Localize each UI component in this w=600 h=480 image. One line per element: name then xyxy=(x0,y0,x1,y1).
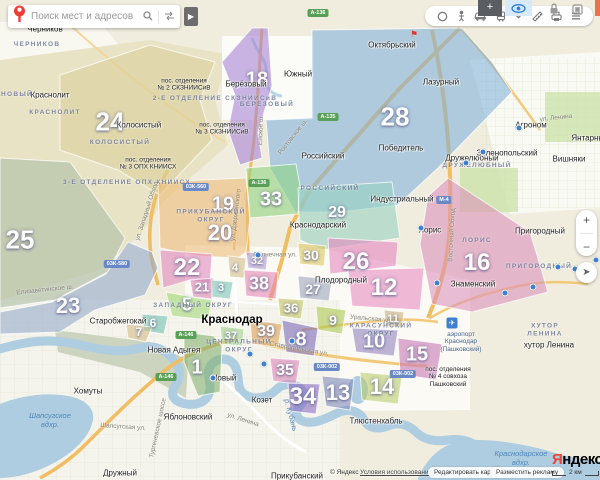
region-number-23[interactable]: 23 xyxy=(56,293,80,319)
poi-marker[interactable] xyxy=(434,280,441,287)
region-number-36[interactable]: 36 xyxy=(284,301,298,316)
water-label: Шапсугское вдхр. xyxy=(29,411,71,429)
region-number-16[interactable]: 16 xyxy=(464,249,491,277)
region-number-6[interactable]: 6 xyxy=(150,316,157,330)
road-label: Ейское ш. xyxy=(257,115,265,145)
scale-bar: 2 км xyxy=(552,469,599,476)
zoom-divider xyxy=(580,233,593,234)
region-number-28[interactable]: 28 xyxy=(381,102,410,133)
settlement-label: пос. отделения № 3 ОПХ КНИИСХ xyxy=(120,157,177,172)
routes-icon[interactable] xyxy=(164,8,175,26)
region-number-3[interactable]: 3 xyxy=(218,282,224,294)
district-label: 3-Е ОТДЕЛЕНИЕ ОПХ КНИИСХ xyxy=(63,179,191,187)
lock-icon[interactable] xyxy=(549,2,559,20)
road-label: ул. Западный Обход xyxy=(134,181,160,242)
road-shield: А-135 xyxy=(318,113,339,121)
window-icon[interactable] xyxy=(572,2,583,20)
district-label: КАРАСУНСКИЙ ОКРУГ xyxy=(350,323,413,340)
district-label: ЛОРИС xyxy=(462,237,492,245)
locate-me-button[interactable]: ➤ xyxy=(576,262,597,283)
settlement-label: пос. отделения № 2 СКЗНИИСиВ xyxy=(157,78,210,93)
water-label: Краснодарское вдхр. xyxy=(495,449,548,467)
town-label: Индустриальный xyxy=(370,195,433,204)
road-shield: А-146 xyxy=(156,373,177,381)
town-label: Краснолит xyxy=(30,91,69,100)
region-number-38[interactable]: 38 xyxy=(249,274,269,295)
poi-marker[interactable] xyxy=(247,351,254,358)
road-label: Тургеневское шоссе xyxy=(148,397,168,458)
town-label: Южный xyxy=(284,70,312,79)
road-shield: 03К-002 xyxy=(314,363,340,371)
district-label: КРАСНОЛИТ xyxy=(29,109,80,117)
road-shield: 03К-580 xyxy=(104,260,130,268)
road-shield: А-136 xyxy=(249,179,270,187)
search-icon[interactable] xyxy=(143,8,153,26)
poi-marker[interactable] xyxy=(516,125,523,132)
town-label: хутор Ленина xyxy=(524,341,574,350)
road-label: ул. Ленина xyxy=(539,113,572,123)
poi-marker[interactable] xyxy=(418,225,425,232)
town-label: Козет xyxy=(252,396,272,405)
district-label: РОССИЙСКИЙ xyxy=(300,185,359,193)
map-footer: © Яндекс Условия использования Редактиро… xyxy=(0,466,600,480)
town-label: Плодородный xyxy=(315,276,367,285)
town-label: Янтарный xyxy=(571,134,600,143)
road-shield: А-146 xyxy=(176,331,197,339)
district-label: ЧЕРНИКОВ xyxy=(14,41,61,49)
town-label: Тлюстенхабль xyxy=(349,417,402,426)
road-shield: А-136 xyxy=(308,9,329,17)
poi-marker[interactable] xyxy=(480,149,487,156)
region-number-25[interactable]: 25 xyxy=(6,225,35,256)
poi-marker[interactable] xyxy=(255,252,262,259)
road-shield: М-4 xyxy=(436,196,451,204)
region-number-33[interactable]: 33 xyxy=(260,189,282,212)
town-label: Победитель xyxy=(379,144,424,153)
airport-label: аэропорт Краснодар (Пашковский) xyxy=(440,331,481,353)
flag-marker[interactable]: ⚑ xyxy=(410,29,418,40)
road-shield: 03К-560 xyxy=(183,183,209,191)
panel-expand-button[interactable]: ▶ xyxy=(184,7,198,26)
region-number-7[interactable]: 7 xyxy=(136,325,143,339)
town-label: Хомуты xyxy=(74,387,103,396)
browser-edge-sliver xyxy=(595,0,600,16)
road-label: Ростовское ш. xyxy=(277,118,309,156)
terms-link[interactable]: Условия использования xyxy=(360,469,432,476)
district-label: ПРИГОРОДНЫЙ xyxy=(506,263,572,271)
region-number-1[interactable]: 1 xyxy=(191,357,202,380)
town-label: Яблоновский xyxy=(164,413,213,422)
town-label: Лазурный xyxy=(423,78,459,87)
district-label: БЕРЁЗОВЫЙ xyxy=(240,101,294,109)
region-number-21[interactable]: 21 xyxy=(195,280,209,295)
town-label: Старобжегокай xyxy=(90,317,147,326)
copyright-label: © Яндекс xyxy=(330,469,358,476)
district-label: ХУТОР ЛЕНИНА xyxy=(518,323,573,340)
district-label: ЦЕНТРАЛЬНЫЙ ОКРУГ xyxy=(206,339,272,356)
region-number-29[interactable]: 29 xyxy=(328,204,346,222)
poi-marker[interactable] xyxy=(555,264,562,271)
airport-icon[interactable]: ✈ xyxy=(447,318,458,329)
road-shield: 03К-002 xyxy=(390,370,416,378)
poi-marker[interactable] xyxy=(261,361,268,368)
town-label: Пригородный xyxy=(515,227,565,236)
eye-extension-tile[interactable] xyxy=(505,0,532,16)
panorama-icon[interactable] xyxy=(457,10,466,22)
town-label: Российский xyxy=(302,152,345,161)
poi-marker[interactable] xyxy=(463,160,470,167)
scale-label: 2 км xyxy=(569,469,582,476)
poi-marker[interactable] xyxy=(593,257,600,264)
town-label: Берёзовый xyxy=(225,80,266,89)
region-number-13[interactable]: 13 xyxy=(326,380,350,406)
poi-marker[interactable] xyxy=(502,290,509,297)
city-label: Краснодар xyxy=(201,314,262,326)
zoom-in-button[interactable]: + xyxy=(576,214,597,226)
region-number-9[interactable]: 9 xyxy=(329,312,337,328)
search-bar[interactable]: Поиск мест и адресов xyxy=(8,5,180,28)
map-canvas[interactable]: 2425282318192033292221567134323836373927… xyxy=(0,0,600,480)
map-label-layer: 2425282318192033292221567134323836373927… xyxy=(0,0,600,480)
region-number-15[interactable]: 15 xyxy=(406,344,428,367)
town-label: Знаменский xyxy=(451,280,496,289)
road-label: Восточный Обход xyxy=(447,208,457,262)
region-number-26[interactable]: 26 xyxy=(343,248,370,276)
road-label: Шапсугская ул. xyxy=(100,422,146,432)
town-label: Вишняки xyxy=(553,155,586,164)
town-label: Колосистый xyxy=(117,121,162,130)
ruler-icon[interactable] xyxy=(532,11,543,22)
town-label: Новая Адыгея xyxy=(148,346,201,355)
district-label: ДРУЖЕЛЮБНЫЙ xyxy=(442,162,511,170)
settlement-label: пос. отделения № 3 СКЗНИИСиВ xyxy=(195,122,248,137)
yandex-logo[interactable]: Яндекс xyxy=(552,451,600,468)
region-number-22[interactable]: 22 xyxy=(174,254,201,282)
poi-marker[interactable] xyxy=(289,338,296,345)
search-divider xyxy=(158,10,159,24)
region-number-35[interactable]: 35 xyxy=(276,362,294,380)
region-number-12[interactable]: 12 xyxy=(371,274,398,302)
region-number-30[interactable]: 30 xyxy=(303,247,319,263)
layers-icon[interactable] xyxy=(437,11,448,22)
yandex-maps-pin-logo xyxy=(13,5,26,28)
zoom-controls: + − xyxy=(576,210,597,256)
scale-line-left xyxy=(552,471,566,476)
district-label: ЗАПАДНЫЙ ОКРУГ xyxy=(153,302,233,310)
poi-marker[interactable] xyxy=(530,284,537,291)
district-label: НОВЫЙ xyxy=(1,91,33,99)
yandex-maps-app: 2425282318192033292221567134323836373927… xyxy=(0,0,600,480)
zoom-out-button[interactable]: − xyxy=(576,241,597,253)
road-label: ул. Ленина xyxy=(226,412,259,429)
eye-icon xyxy=(511,4,526,13)
town-label: Октябрьский xyxy=(368,41,415,50)
settlement-label: пос. отделения № 4 совхоза Пашковский xyxy=(425,366,471,388)
search-input[interactable]: Поиск мест и адресов xyxy=(31,11,138,22)
plus-extension-tile[interactable]: + xyxy=(478,0,502,16)
poi-marker[interactable] xyxy=(210,375,217,382)
town-label: Краснодарский xyxy=(290,221,346,230)
region-number-4[interactable]: 4 xyxy=(232,262,238,274)
district-label: КОЛОСИСТЫЙ xyxy=(90,139,150,147)
scale-line-right xyxy=(585,471,599,476)
